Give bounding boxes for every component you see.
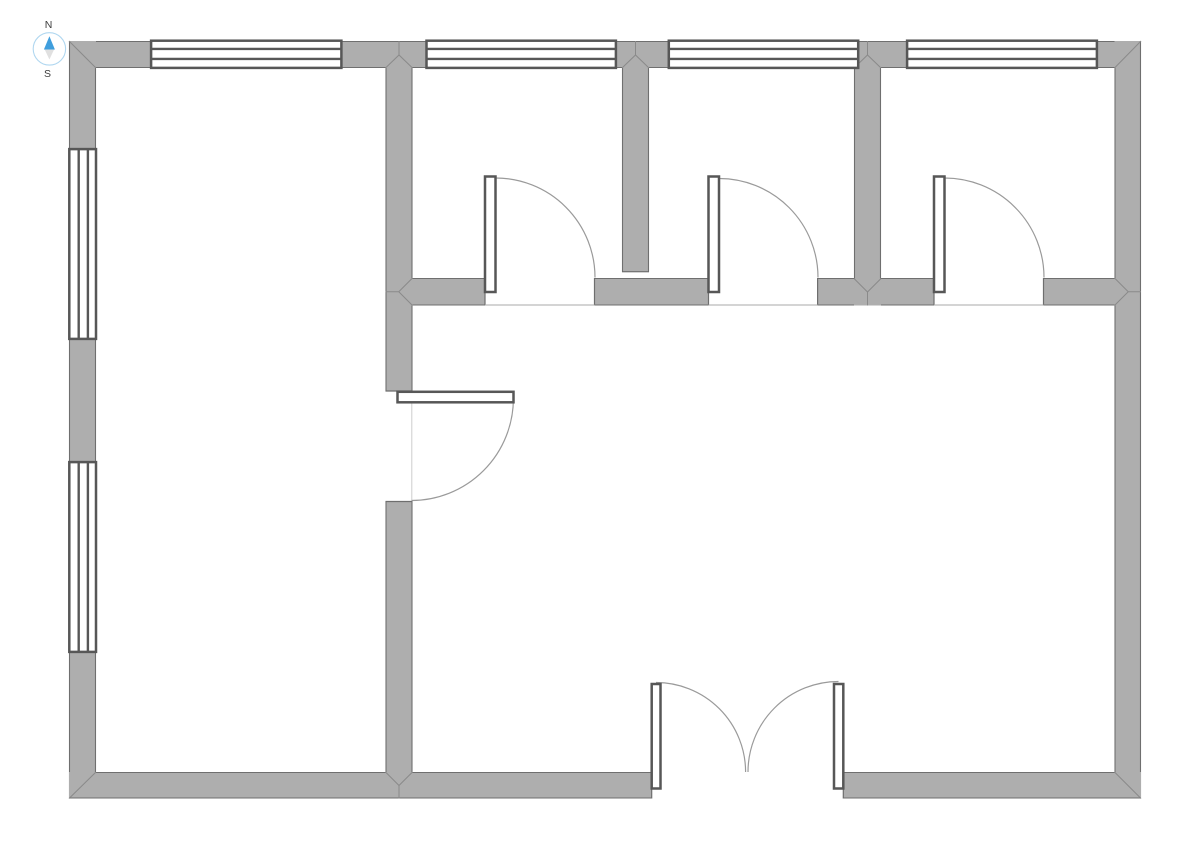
svg-text:S: S bbox=[44, 68, 51, 80]
svg-text:N: N bbox=[45, 19, 53, 31]
